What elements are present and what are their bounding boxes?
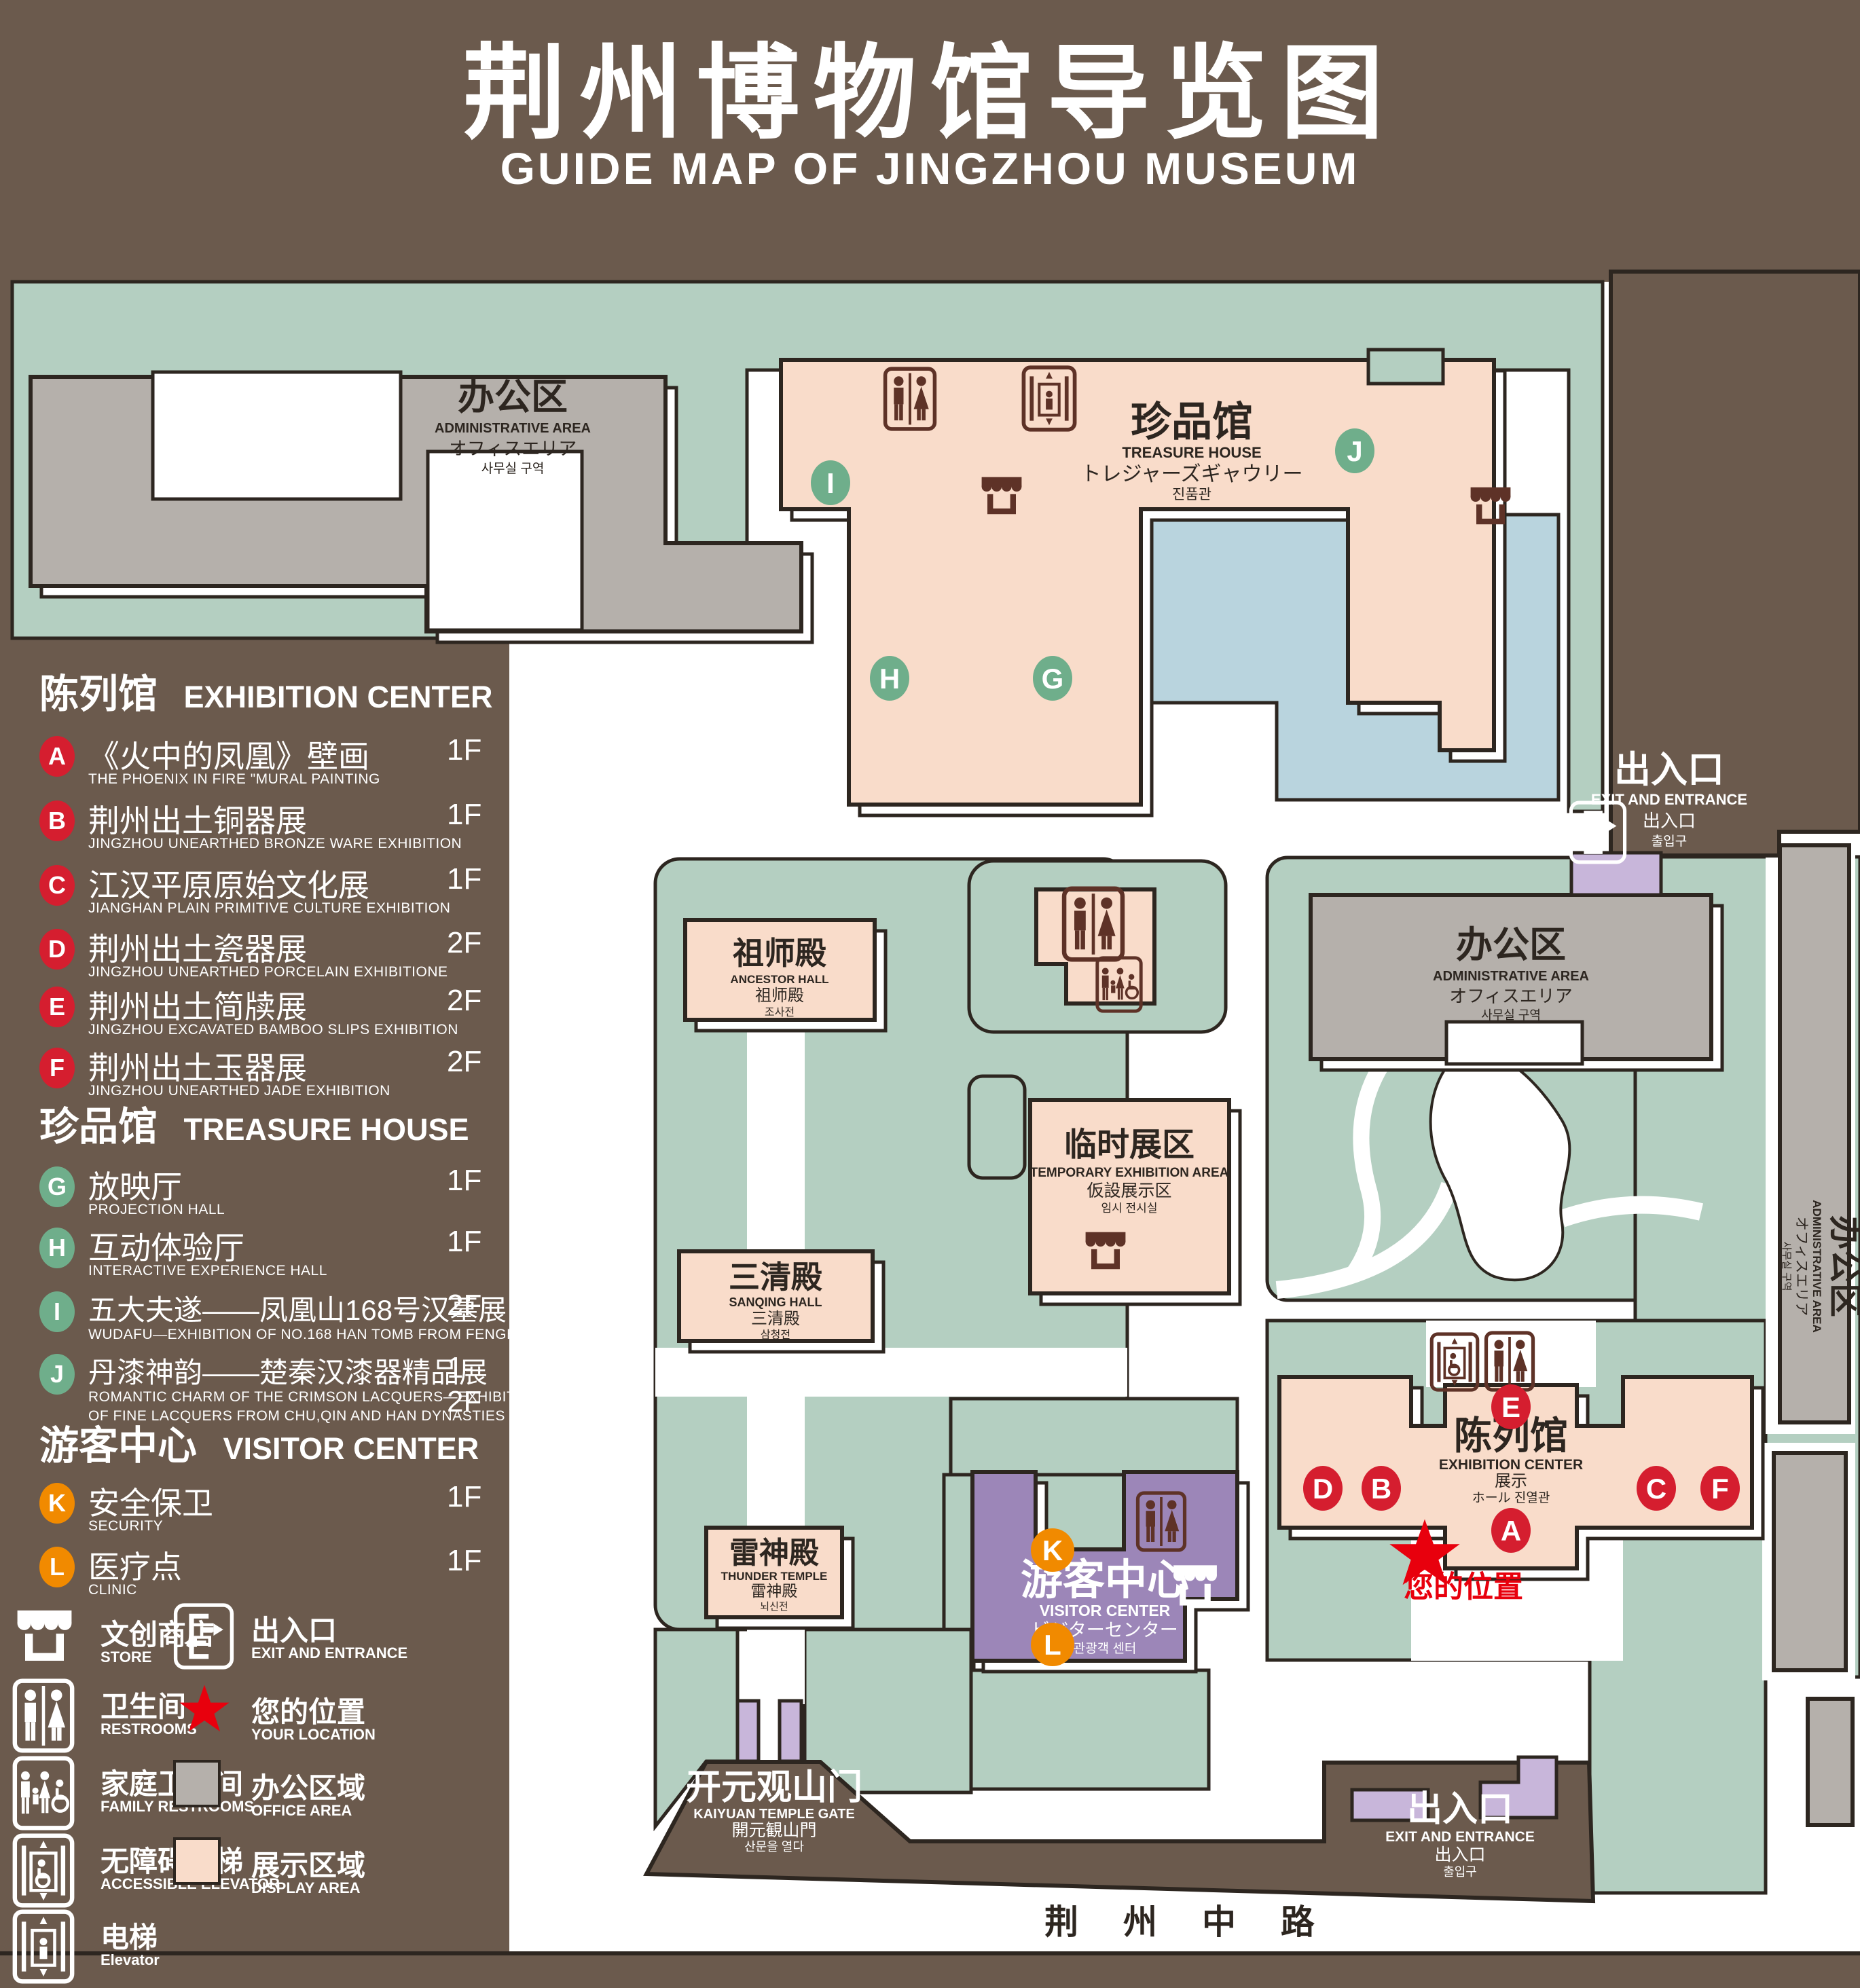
svg-text:祖师殿: 祖师殿 xyxy=(755,987,804,1005)
building-gray-lower xyxy=(1774,1453,1846,1670)
badge-b: B xyxy=(39,800,75,841)
svg-text:E: E xyxy=(1501,1391,1520,1423)
floor-label: 1F xyxy=(447,1225,481,1259)
store-icon xyxy=(12,1606,77,1665)
svg-text:THUNDER TEMPLE: THUNDER TEMPLE xyxy=(721,1570,828,1583)
legend-restrooms: 卫生间 RESTROOMS xyxy=(12,1678,75,1756)
svg-text:사무실 구역: 사무실 구역 xyxy=(1481,1008,1541,1022)
svg-text:K: K xyxy=(1042,1534,1063,1566)
svg-text:뇌신전: 뇌신전 xyxy=(760,1601,788,1613)
svg-text:D: D xyxy=(1313,1473,1333,1505)
green-area-hook xyxy=(969,1076,1025,1178)
svg-text:EXIT AND ENTRANCE: EXIT AND ENTRANCE xyxy=(1591,791,1747,808)
road-band-bottom xyxy=(0,1953,1860,1988)
map-badge-i: I xyxy=(811,460,850,505)
badge-j: J xyxy=(39,1354,75,1395)
svg-text:ADMINISTRATIVE AREA: ADMINISTRATIVE AREA xyxy=(435,421,591,436)
svg-text:산문을 열다: 산문을 열다 xyxy=(744,1840,804,1854)
green-area-visitor-top xyxy=(951,1399,1237,1475)
floor-label: 1F xyxy=(447,1164,481,1198)
svg-text:L: L xyxy=(1044,1629,1061,1661)
svg-text:A: A xyxy=(1501,1515,1521,1547)
svg-text:ホール 진열관: ホール 진열관 xyxy=(1472,1490,1550,1505)
display-area-swatch xyxy=(173,1837,221,1885)
gate-pillar-right xyxy=(780,1701,801,1761)
floor-label: 2F xyxy=(447,1045,481,1079)
building-purple-top-exit xyxy=(1571,853,1661,895)
map-badge-d: D xyxy=(1303,1466,1343,1511)
label-your-location: 您的位置 xyxy=(1404,1570,1523,1604)
badge-c: C xyxy=(39,865,75,906)
svg-text:조사전: 조사전 xyxy=(765,1006,795,1018)
section-title-cn: 游客中心 xyxy=(39,1424,197,1468)
floor-label: 1F xyxy=(447,798,481,832)
label-road: 荆 州 中 路 xyxy=(1044,1903,1332,1941)
svg-text:C: C xyxy=(1646,1473,1666,1505)
svg-text:ADMINISTRATIVE AREA: ADMINISTRATIVE AREA xyxy=(1433,969,1589,984)
section-title-cn: 陈列馆 xyxy=(39,672,158,716)
accessible-elevator-icon xyxy=(12,1833,75,1908)
svg-text:H: H xyxy=(879,663,900,695)
map-badge-b: B xyxy=(1362,1466,1401,1511)
svg-text:珍品馆: 珍品馆 xyxy=(1131,399,1253,445)
svg-text:オフィスエリア: オフィスエリア xyxy=(1793,1217,1809,1317)
path-horizontal xyxy=(655,1348,1127,1397)
badge-d: D xyxy=(39,929,75,970)
svg-text:出入口: 出入口 xyxy=(1614,750,1724,790)
family-restrooms-icon xyxy=(12,1756,75,1830)
svg-text:출입구: 출입구 xyxy=(1652,834,1687,849)
svg-text:展示: 展示 xyxy=(1495,1472,1527,1490)
map-badge-c: C xyxy=(1637,1466,1676,1511)
legend-store: 文创商店 STORE xyxy=(12,1606,77,1668)
svg-text:オフィスエリア: オフィスエリア xyxy=(1449,986,1572,1006)
map-badge-f: F xyxy=(1700,1466,1740,1511)
map-badge-l: L xyxy=(1031,1623,1074,1666)
floor-label: 2F xyxy=(447,1289,481,1323)
map-badge-g: G xyxy=(1033,656,1072,701)
section-exhibition-center: 陈列馆 EXHIBITION CENTER xyxy=(39,662,493,719)
legend-family-restrooms: 家庭卫生间 FAMILY RESTROOMS xyxy=(12,1756,75,1834)
svg-text:开元观山门: 开元观山门 xyxy=(686,1768,862,1807)
restrooms-icon xyxy=(12,1678,75,1753)
svg-text:雷神殿: 雷神殿 xyxy=(729,1536,819,1570)
section-title-cn: 珍品馆 xyxy=(39,1105,158,1149)
badge-k: K xyxy=(39,1483,75,1524)
road-top-right xyxy=(1611,272,1860,903)
legend-elevator: 电梯 Elevator xyxy=(12,1909,75,1987)
page-title: 荆州博物馆导览图 xyxy=(0,10,1860,159)
svg-text:사무실 구역: 사무실 구역 xyxy=(481,461,545,476)
svg-text:TREASURE HOUSE: TREASURE HOUSE xyxy=(1122,444,1261,461)
svg-text:仮設展示区: 仮設展示区 xyxy=(1087,1181,1171,1200)
badge-h: H xyxy=(39,1228,75,1268)
section-treasure-house: 珍品馆 TREASURE HOUSE xyxy=(39,1094,469,1152)
badge-e: E xyxy=(39,987,75,1027)
svg-text:삼청전: 삼청전 xyxy=(761,1329,790,1341)
floor-label: 1F xyxy=(447,733,481,767)
svg-text:祖师殿: 祖师殿 xyxy=(733,936,826,971)
svg-text:G: G xyxy=(1042,663,1064,695)
svg-text:I: I xyxy=(826,467,835,499)
svg-text:出入口: 出入口 xyxy=(1434,1845,1485,1864)
svg-text:사무실 구역: 사무실 구역 xyxy=(1781,1241,1792,1291)
svg-text:雷神殿: 雷神殿 xyxy=(751,1582,798,1600)
elevator-icon xyxy=(12,1909,75,1984)
guide-map-poster: 办公区 ADMINISTRATIVE AREA オフィスエリア 사무실 구역 珍… xyxy=(0,0,1860,1988)
page-subtitle: GUIDE MAP OF JINGZHOU MUSEUM xyxy=(0,143,1860,194)
section-title-en: VISITOR CENTER xyxy=(223,1431,479,1466)
your-location-star xyxy=(178,1684,231,1734)
svg-text:办公区: 办公区 xyxy=(1826,1215,1860,1317)
building-gray-corner xyxy=(1808,1699,1853,1825)
svg-text:办公区: 办公区 xyxy=(1456,925,1566,965)
svg-text:VISITOR CENTER: VISITOR CENTER xyxy=(1040,1602,1171,1619)
svg-text:出入口: 出入口 xyxy=(1643,811,1696,831)
floor-label: 1F xyxy=(447,1480,481,1514)
svg-text:EXIT AND ENTRANCE: EXIT AND ENTRANCE xyxy=(1385,1829,1535,1845)
svg-text:三清殿: 三清殿 xyxy=(729,1259,822,1295)
badge-l: L xyxy=(39,1547,75,1587)
floor-label: 2F xyxy=(447,984,481,1018)
legend-exit: 出入口 EXIT AND ENTRANCE xyxy=(173,1602,234,1674)
map-badge-a: A xyxy=(1491,1508,1531,1553)
svg-text:オフィスエリア: オフィスエリア xyxy=(449,439,577,459)
svg-text:三清殿: 三清殿 xyxy=(751,1310,800,1328)
svg-text:TEMPORARY EXHIBITION AREA: TEMPORARY EXHIBITION AREA xyxy=(1030,1166,1229,1180)
map-badge-k: K xyxy=(1031,1528,1074,1572)
svg-text:ADMINISTRATIVE AREA: ADMINISTRATIVE AREA xyxy=(1810,1200,1823,1333)
svg-text:J: J xyxy=(1347,435,1362,467)
badge-g: G xyxy=(39,1166,75,1207)
badge-i: I xyxy=(39,1291,75,1332)
exit-icon xyxy=(173,1602,234,1670)
svg-text:출입구: 출입구 xyxy=(1443,1865,1477,1879)
building-admin-strip xyxy=(1780,845,1849,1422)
floor-label: 1F xyxy=(447,1544,481,1578)
gate-pillar-left xyxy=(737,1701,759,1761)
svg-text:办公区: 办公区 xyxy=(458,377,568,418)
legend-your-location: 您的位置 YOUR LOCATION xyxy=(178,1684,231,1737)
section-title-en: TREASURE HOUSE xyxy=(183,1112,469,1147)
svg-text:出入口: 出入口 xyxy=(1407,1790,1513,1829)
section-visitor-center: 游客中心 VISITOR CENTER xyxy=(39,1414,479,1471)
svg-text:F: F xyxy=(1711,1473,1729,1505)
badge-a: A xyxy=(39,736,75,777)
green-area-visitor-bottom xyxy=(944,1670,1209,1789)
svg-text:トレジャーズギャウリー: トレジャーズギャウリー xyxy=(1081,463,1303,485)
floor-label: 2F xyxy=(447,926,481,960)
map-badge-h: H xyxy=(870,656,909,701)
elevator-icon xyxy=(1023,367,1074,429)
svg-text:SANQING HALL: SANQING HALL xyxy=(729,1295,822,1309)
svg-text:진품관: 진품관 xyxy=(1172,487,1211,502)
svg-text:EXHIBITION CENTER: EXHIBITION CENTER xyxy=(1439,1457,1583,1473)
legend-accessible-elevator: 无障碍电梯 ACCESSIBLE ELEVATOR xyxy=(12,1833,75,1911)
map-badge-j: J xyxy=(1335,428,1374,473)
section-title-en: EXHIBITION CENTER xyxy=(183,680,492,714)
svg-text:B: B xyxy=(1371,1473,1391,1505)
svg-text:ANCESTOR HALL: ANCESTOR HALL xyxy=(730,973,828,986)
svg-text:開元観山門: 開元観山門 xyxy=(731,1821,816,1840)
office-area-swatch xyxy=(173,1760,221,1807)
svg-text:临时展区: 临时展区 xyxy=(1064,1127,1195,1163)
floor-label: 1F xyxy=(447,862,481,896)
svg-text:관광객 센터: 관광객 센터 xyxy=(1074,1641,1137,1656)
map-badge-e: E xyxy=(1491,1384,1531,1429)
svg-text:임시 전시실: 임시 전시실 xyxy=(1101,1202,1158,1215)
svg-text:KAIYUAN TEMPLE GATE: KAIYUAN TEMPLE GATE xyxy=(693,1807,854,1822)
badge-f: F xyxy=(39,1048,75,1088)
